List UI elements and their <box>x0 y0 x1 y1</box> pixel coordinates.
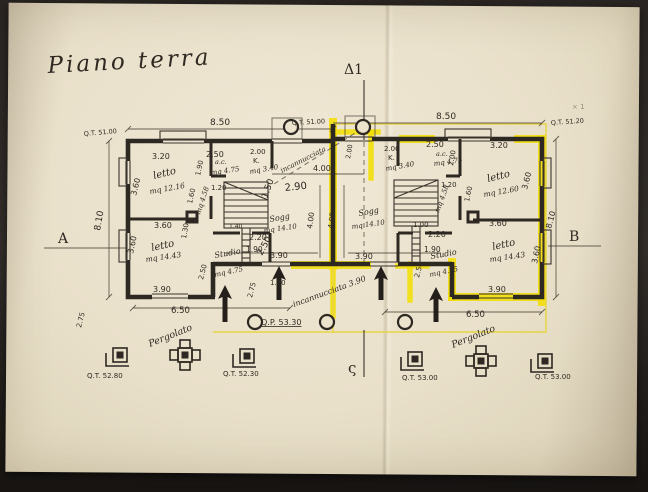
elevation-label: Q.P. 53.30 <box>261 318 301 327</box>
dim-label: 8.50 <box>436 112 456 122</box>
l-pillar-detail <box>401 352 424 370</box>
dim-label: 2.00 <box>384 145 400 153</box>
dim-label: 3.60 <box>126 235 139 254</box>
dim-label: 1.20 <box>211 184 227 192</box>
dim-label: 3.60 <box>129 177 142 196</box>
dim-label: 1.30 <box>180 223 191 240</box>
dim-label: 2.00 <box>344 144 354 160</box>
room-label-letto: letto <box>486 169 511 185</box>
column-circle <box>356 120 370 134</box>
dim-label: 1.50 <box>260 178 276 201</box>
dim-label: 8.10 <box>93 210 106 232</box>
room-label-letto: letto <box>491 237 516 253</box>
dim-label: 1.60 <box>463 185 474 202</box>
dim-label: 2.00 <box>250 148 266 156</box>
dim-label: 4.00 <box>313 164 331 173</box>
dim-label: 1.90 <box>270 279 286 287</box>
cross-pillar-detail <box>170 340 200 370</box>
dim-label: 1.90 <box>194 159 205 176</box>
dim-label: 3.20 <box>490 141 508 150</box>
photo-of-drawing: Piano terraΔ1ABςQ.T. 51.008.50Q.T. 51.00… <box>0 0 648 492</box>
pencil-mark: × 1 <box>572 103 585 111</box>
dim-label: 3.60 <box>520 171 533 190</box>
dim-label: 2.20 <box>428 230 446 239</box>
area-label: mq 12.60 <box>483 184 520 199</box>
entrance-arrow-icon <box>429 287 443 322</box>
column-circle <box>320 315 334 329</box>
note-label-pergolato: Pergolato <box>449 323 497 351</box>
dim-label: 2.50 <box>426 140 444 149</box>
floor-plan-drawing: Piano terraΔ1ABςQ.T. 51.008.50Q.T. 51.00… <box>0 0 648 492</box>
room-label-ac: a.c. <box>215 158 227 166</box>
dim-label: 4.00 <box>305 211 316 229</box>
room-label-kitchen: K. <box>388 154 395 162</box>
dim-label: 3.60 <box>489 219 507 228</box>
area-label: mq 14.10 <box>351 218 386 231</box>
pillar-details <box>106 340 554 376</box>
elevation-label: Q.T. 51.00 <box>292 117 325 127</box>
room-label-studio: Studio <box>214 246 242 259</box>
dim-label: 3.90 <box>153 285 171 294</box>
dim-label: 6.50 <box>171 306 190 316</box>
dim-label: 3.90 <box>488 285 506 294</box>
dim-label: 1.40 <box>229 223 243 230</box>
section-marker-b: B <box>569 229 579 245</box>
l-pillar-detail <box>233 349 256 367</box>
dim-label: 2.50 <box>197 263 209 280</box>
elevation-label: Q.T. 51.00 <box>83 127 117 138</box>
dim-label: 6.50 <box>466 310 485 320</box>
drawing-title: Piano terra <box>46 44 212 79</box>
dim-label: 2.90 <box>284 181 307 194</box>
room-label-soggiorno: Sogg <box>358 206 380 218</box>
l-pillar-detail <box>531 354 554 372</box>
dim-label: 1.00 <box>413 221 429 229</box>
column-circle <box>248 315 262 329</box>
dim-label: 3.90 <box>270 251 288 260</box>
dim-label: 3.60 <box>154 221 172 230</box>
section-marker-bottom: ς <box>348 359 356 377</box>
entrance-arrow-icon <box>374 266 388 300</box>
column-circle <box>398 315 412 329</box>
elevation-label: Q.T. 52.30 <box>223 370 259 378</box>
elevation-label: Q.T. 53.00 <box>402 374 438 382</box>
elevation-label: Q.T. 52.80 <box>87 372 123 380</box>
room-label-ac: a.c. <box>436 150 448 158</box>
cross-pillar-detail <box>466 346 496 376</box>
area-label: mq 14.43 <box>145 250 182 264</box>
section-marker-a: A <box>57 231 69 247</box>
dim-label: 2.75 <box>75 311 87 328</box>
entrance-arrow-icon <box>218 285 232 322</box>
l-pillar-detail <box>106 348 129 366</box>
area-label: mq 4.75 <box>214 265 244 279</box>
note-label-pergolato: Pergolato <box>146 322 194 350</box>
dim-label: 2.75 <box>246 281 258 298</box>
dim-label: 8.50 <box>210 118 230 128</box>
room-label-soggiorno: Sogg <box>269 212 291 224</box>
dim-label: 3.90 <box>355 252 373 261</box>
area-label: mq 12.16 <box>149 181 186 196</box>
note-label: incannucciata 3.90 <box>292 274 367 309</box>
room-label-letto: letto <box>152 166 177 182</box>
dim-label: 1.60 <box>186 187 197 204</box>
elevation-label: Q.T. 51.20 <box>551 117 585 127</box>
room-label-kitchen: K. <box>253 157 260 165</box>
dim-label: 3.20 <box>152 152 170 161</box>
elevation-label: Q.T. 53.00 <box>535 373 571 381</box>
section-marker-top: Δ1 <box>344 62 363 78</box>
